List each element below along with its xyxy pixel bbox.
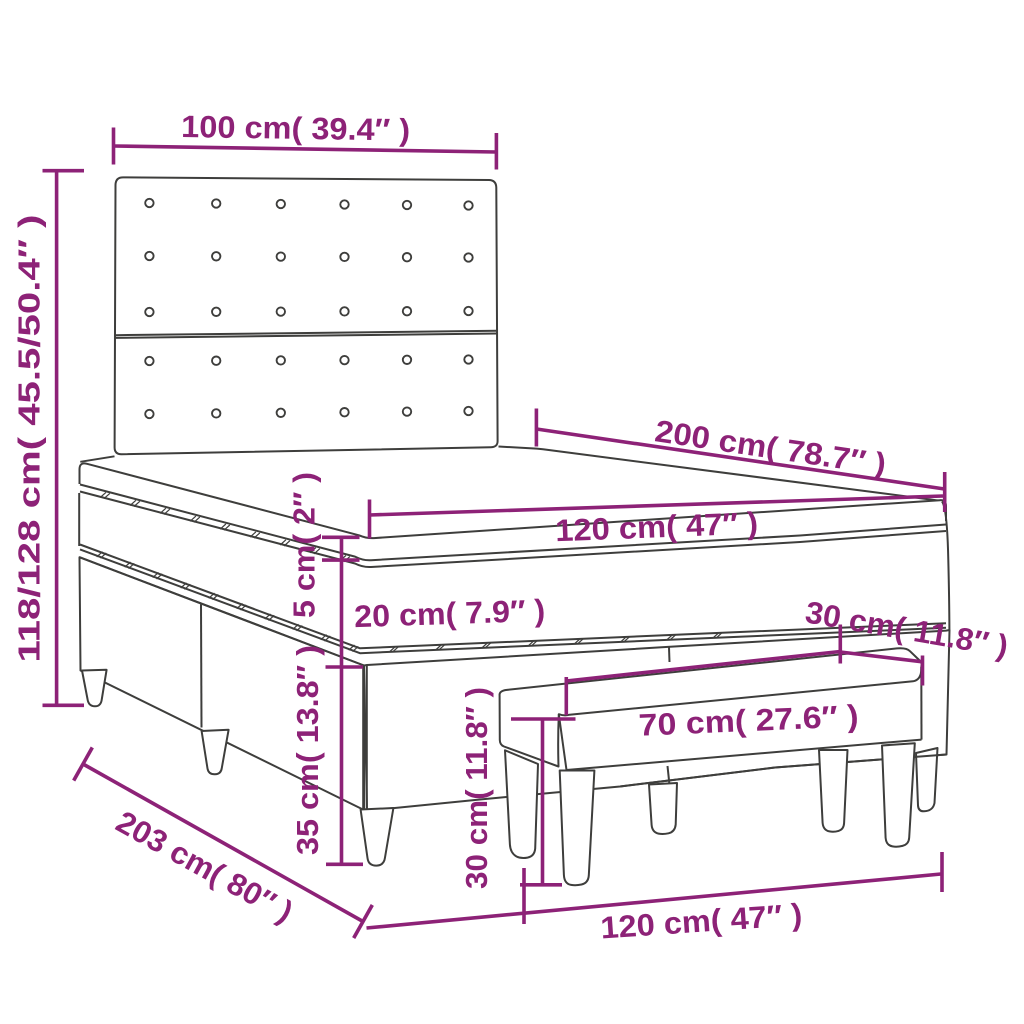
svg-text:20 cm( 7.9″ ): 20 cm( 7.9″ ) [354, 593, 546, 634]
svg-text:120 cm( 47″ ): 120 cm( 47″ ) [554, 506, 758, 549]
svg-text:35 cm( 13.8″ ): 35 cm( 13.8″ ) [290, 645, 325, 855]
svg-text:5 cm( 2″ ): 5 cm( 2″ ) [287, 472, 322, 618]
svg-text:203 cm( 80″ ): 203 cm( 80″ ) [110, 804, 298, 930]
svg-text:30 cm( 11.8″ ): 30 cm( 11.8″ ) [459, 687, 494, 889]
svg-text:118/128 cm( 45.5/50.4″ ): 118/128 cm( 45.5/50.4″ ) [12, 214, 47, 662]
svg-text:100 cm( 39.4″ ): 100 cm( 39.4″ ) [181, 109, 411, 148]
svg-text:200 cm( 78.7″ ): 200 cm( 78.7″ ) [653, 413, 889, 482]
